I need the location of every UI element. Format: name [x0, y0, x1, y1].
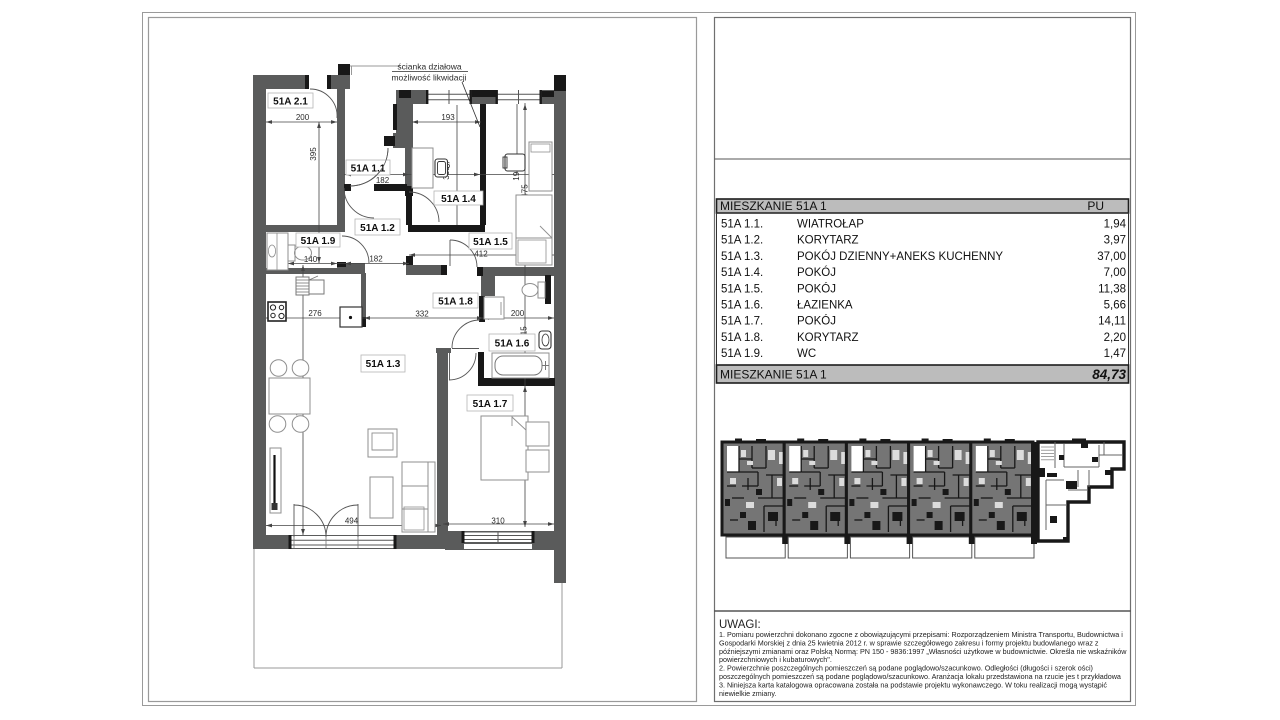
svg-text:5,66: 5,66	[1104, 300, 1126, 312]
svg-text:182: 182	[369, 255, 383, 264]
svg-text:MIESZKANIE 51A 1: MIESZKANIE 51A 1	[720, 199, 827, 213]
svg-text:51A 1.2: 51A 1.2	[360, 223, 395, 234]
svg-text:14,11: 14,11	[1098, 316, 1126, 328]
svg-text:51A 1.6: 51A 1.6	[495, 339, 530, 350]
svg-text:ścianka działowa: ścianka działowa	[397, 62, 462, 72]
svg-text:51A 1.3.: 51A 1.3.	[721, 251, 763, 263]
svg-text:1,94: 1,94	[1104, 219, 1127, 231]
svg-text:51A 1.9: 51A 1.9	[301, 236, 336, 247]
svg-text:412: 412	[474, 250, 488, 259]
svg-text:3. Niniejsza karta katalogowa: 3. Niniejsza karta katalogowa opracowana…	[719, 680, 1107, 689]
svg-text:200: 200	[296, 113, 310, 122]
svg-text:51A 1.1: 51A 1.1	[351, 164, 386, 175]
svg-text:51A 1.7.: 51A 1.7.	[721, 316, 763, 328]
svg-text:WIATROŁAP: WIATROŁAP	[797, 219, 864, 231]
svg-text:POKÓJ: POKÓJ	[797, 266, 836, 279]
svg-text:51A 1.6.: 51A 1.6.	[721, 300, 763, 312]
svg-text:51A 1.7: 51A 1.7	[473, 399, 508, 410]
svg-text:KORYTARZ: KORYTARZ	[797, 332, 859, 344]
svg-text:51A 1.1.: 51A 1.1.	[721, 219, 763, 231]
svg-text:51A 1.8.: 51A 1.8.	[721, 332, 763, 344]
svg-text:7,00: 7,00	[1104, 267, 1126, 279]
svg-text:POKÓJ DZIENNY+ANEKS KUCHENNY: POKÓJ DZIENNY+ANEKS KUCHENNY	[797, 250, 1003, 263]
svg-text:193: 193	[441, 113, 455, 122]
svg-text:51A 1.5: 51A 1.5	[473, 237, 508, 248]
svg-text:51A 1.4: 51A 1.4	[441, 194, 476, 205]
svg-text:1,47: 1,47	[1104, 348, 1126, 360]
svg-text:MIESZKANIE 51A 1: MIESZKANIE 51A 1	[720, 368, 827, 382]
svg-text:POKÓJ: POKÓJ	[797, 315, 836, 328]
svg-text:2,20: 2,20	[1104, 332, 1126, 344]
svg-text:276: 276	[308, 309, 322, 318]
svg-text:200: 200	[511, 309, 525, 318]
svg-text:51A 1.3: 51A 1.3	[366, 359, 401, 370]
svg-text:3,97: 3,97	[1104, 235, 1126, 247]
svg-text:51A 1.2.: 51A 1.2.	[721, 235, 763, 247]
svg-text:332: 332	[415, 310, 429, 319]
svg-text:PU: PU	[1087, 199, 1104, 213]
svg-text:POKÓJ: POKÓJ	[797, 282, 836, 295]
svg-text:84,73: 84,73	[1092, 367, 1126, 382]
svg-text:możliwość likwidacji: możliwość likwidacji	[391, 73, 466, 83]
svg-text:182: 182	[376, 176, 390, 185]
svg-text:ŁAZIENKA: ŁAZIENKA	[797, 300, 853, 312]
svg-text:11,38: 11,38	[1098, 283, 1126, 295]
svg-text:310: 310	[491, 517, 505, 526]
svg-text:395: 395	[309, 147, 318, 161]
svg-text:51A 1.9.: 51A 1.9.	[721, 348, 763, 360]
svg-text:37,00: 37,00	[1097, 251, 1126, 263]
svg-text:494: 494	[345, 517, 359, 526]
svg-text:51A 1.8: 51A 1.8	[438, 297, 473, 308]
svg-text:51A 2.1: 51A 2.1	[273, 97, 308, 108]
svg-text:niewielkie zmiany.: niewielkie zmiany.	[719, 689, 776, 698]
svg-text:WC: WC	[797, 348, 816, 360]
svg-text:51A 1.4.: 51A 1.4.	[721, 267, 763, 279]
svg-text:KORYTARZ: KORYTARZ	[797, 235, 859, 247]
svg-text:51A 1.5.: 51A 1.5.	[721, 283, 763, 295]
